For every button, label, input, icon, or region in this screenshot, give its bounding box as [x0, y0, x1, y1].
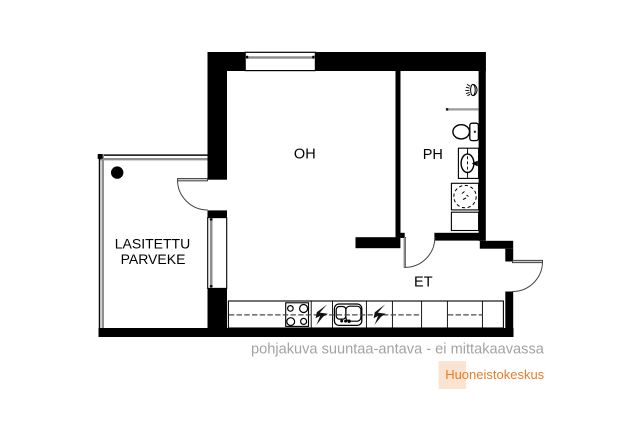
svg-text:PARVEKE: PARVEKE: [121, 251, 186, 267]
svg-text:ET: ET: [414, 275, 433, 291]
svg-text:pohjakuva suuntaa-antava - ei: pohjakuva suuntaa-antava - ei mittakaava…: [251, 341, 545, 357]
svg-text:PH: PH: [423, 147, 443, 163]
svg-text:LASITETTU: LASITETTU: [115, 235, 190, 251]
svg-text:Huoneistokeskus: Huoneistokeskus: [445, 367, 544, 382]
svg-text:OH: OH: [294, 147, 316, 163]
